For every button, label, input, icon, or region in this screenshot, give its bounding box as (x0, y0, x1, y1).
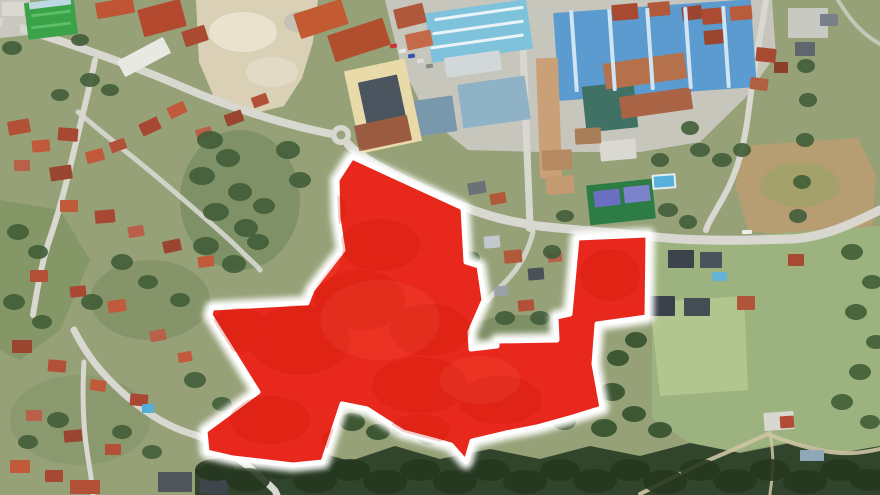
map-canvas (0, 0, 880, 495)
satellite-map (0, 0, 880, 495)
